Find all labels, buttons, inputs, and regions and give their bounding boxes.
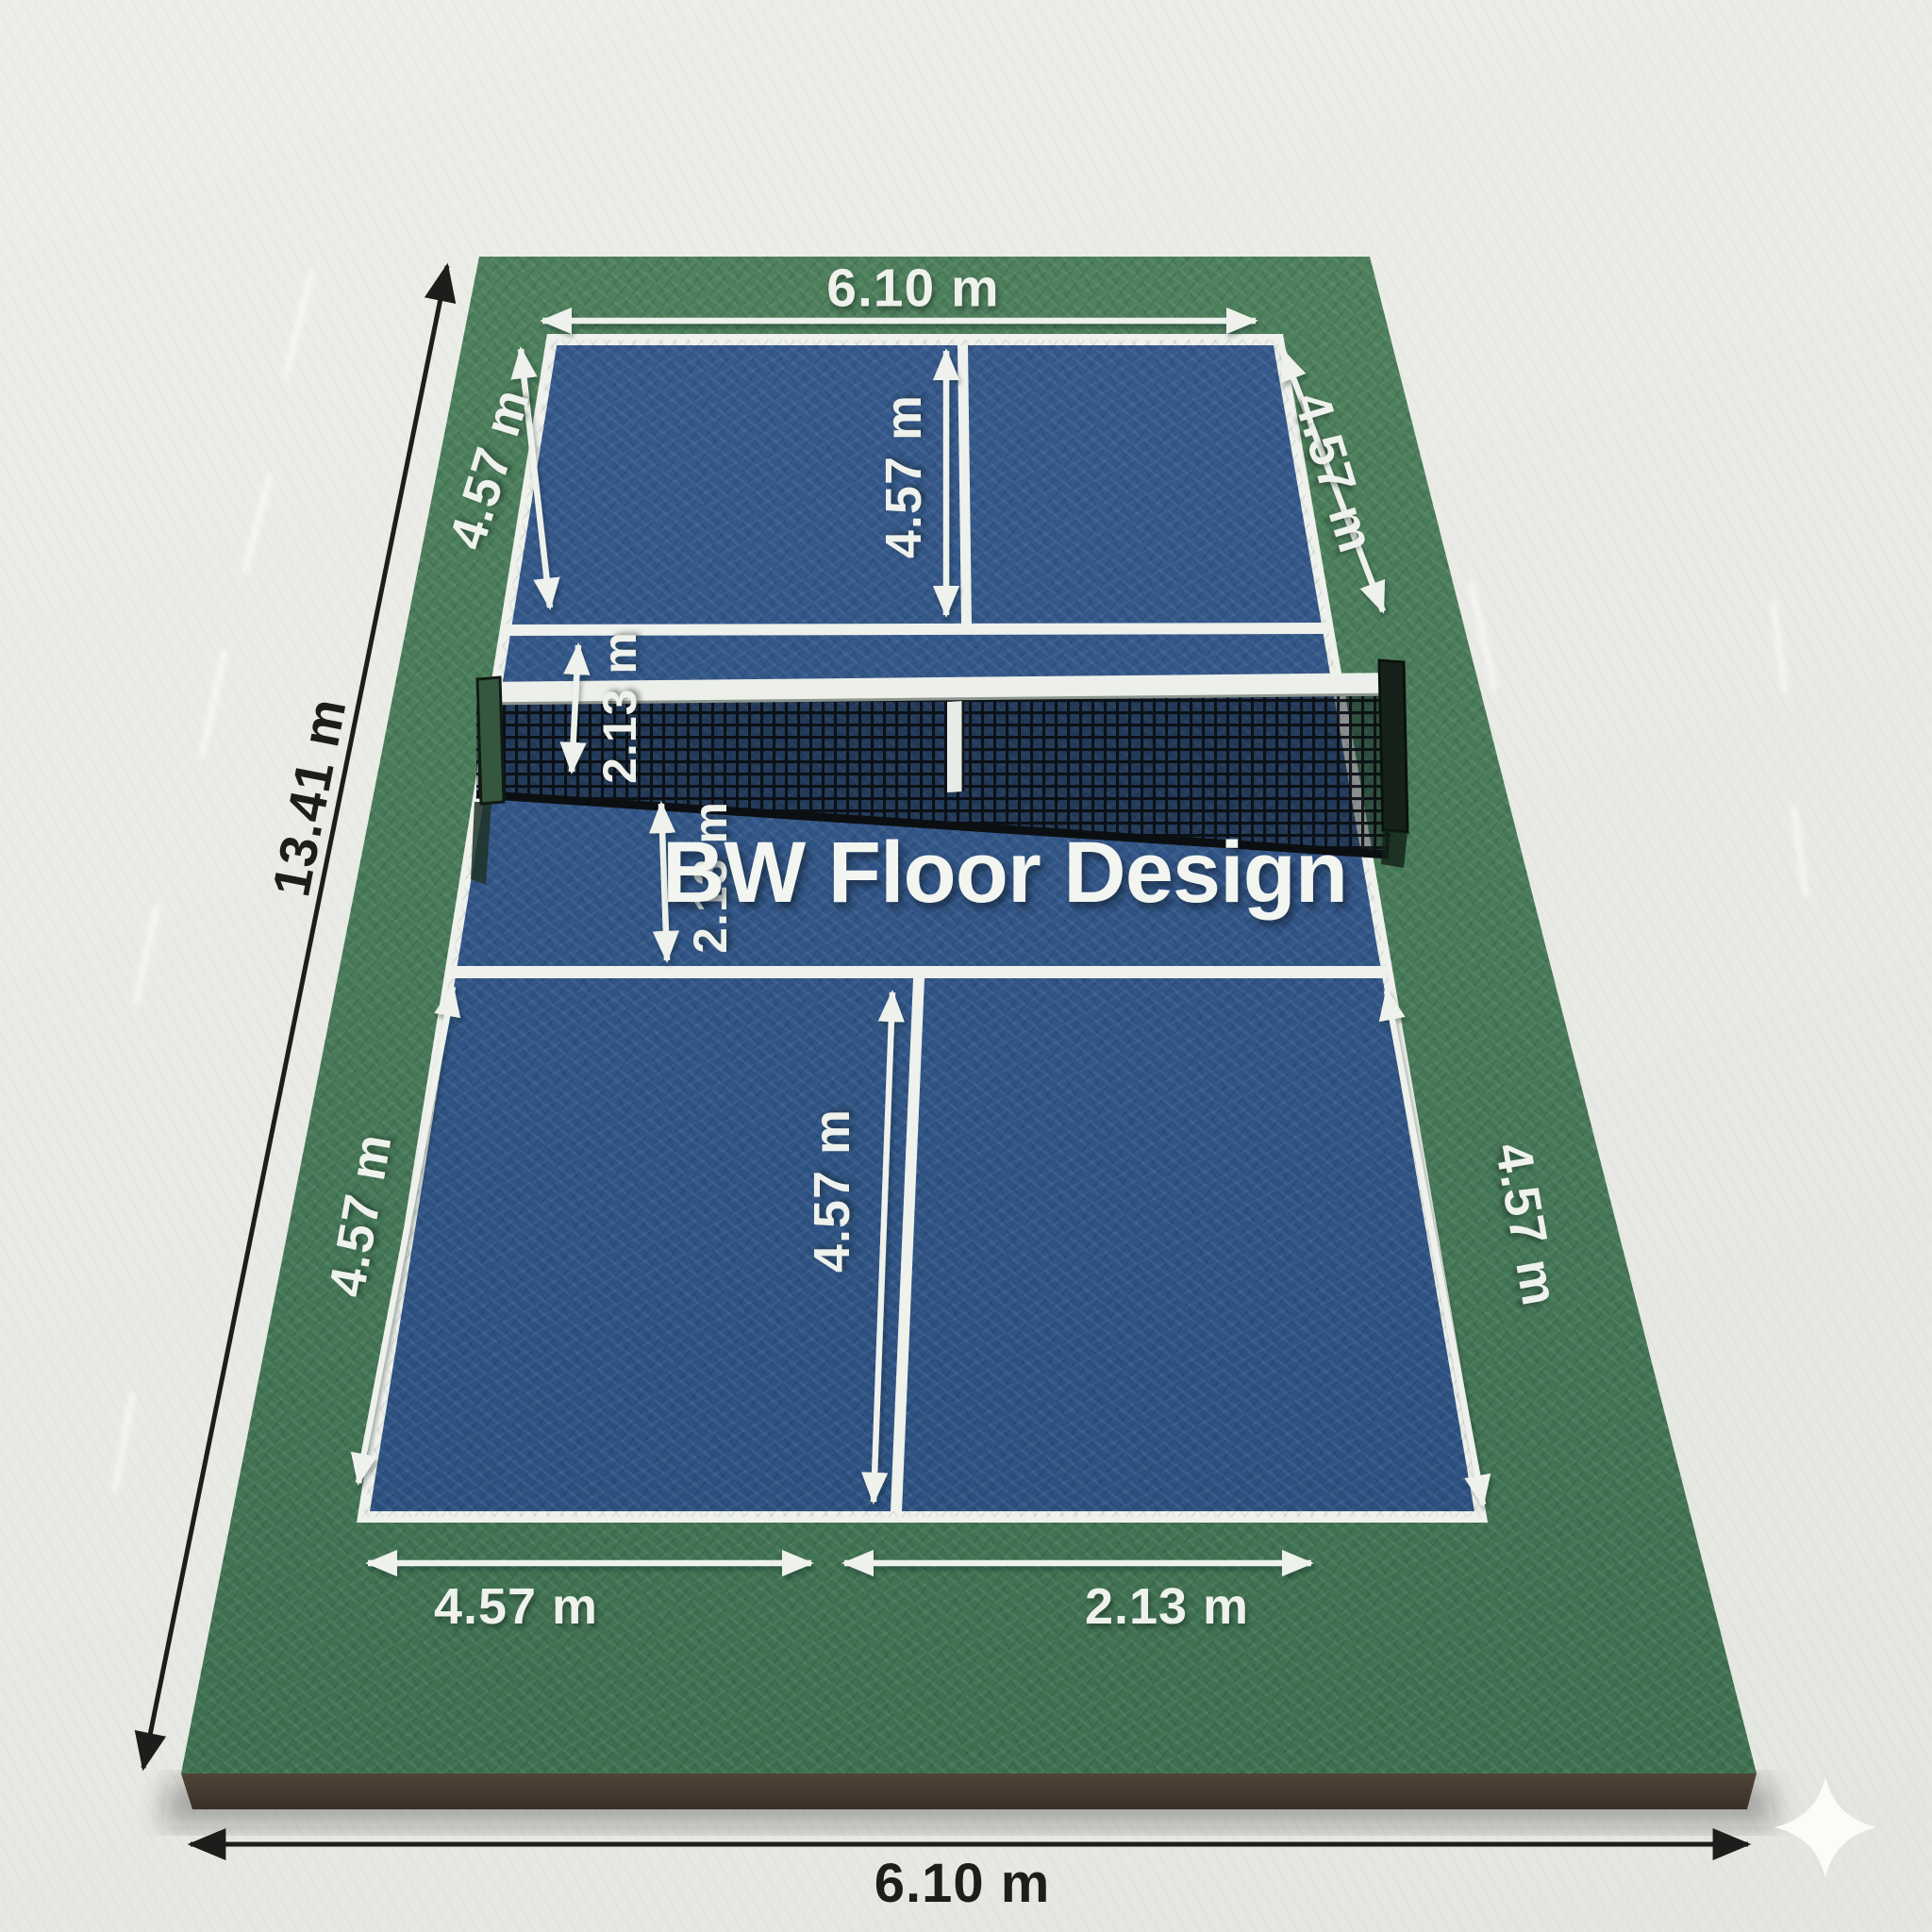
dim-upper-service-depth-label: 4.57 m: [878, 394, 929, 558]
dim-lower-service-depth-label: 4.57 m: [807, 1108, 858, 1273]
net-center-strap: [947, 701, 963, 792]
dim-top-width-label: 6.10 m: [826, 262, 999, 316]
brand-wordmark: BW Floor Design: [662, 829, 1347, 916]
dim-bottom-width-right-label: 2.13 m: [1085, 1581, 1249, 1632]
dim-total-width-label: 6.10 m: [874, 1857, 1051, 1911]
platform-base-edge: [181, 1774, 1757, 1809]
render-canvas: 6.10 m 4.57 m 4.57 m 4.57 m 2.13 m 2.13 …: [0, 0, 1932, 1932]
lower-kitchen-line: [451, 966, 1387, 978]
dim-upper-nvz-label: 2.13 m: [596, 631, 643, 784]
net-post-right: [1379, 660, 1407, 868]
dim-bottom-width-left-label: 4.57 m: [434, 1581, 598, 1632]
